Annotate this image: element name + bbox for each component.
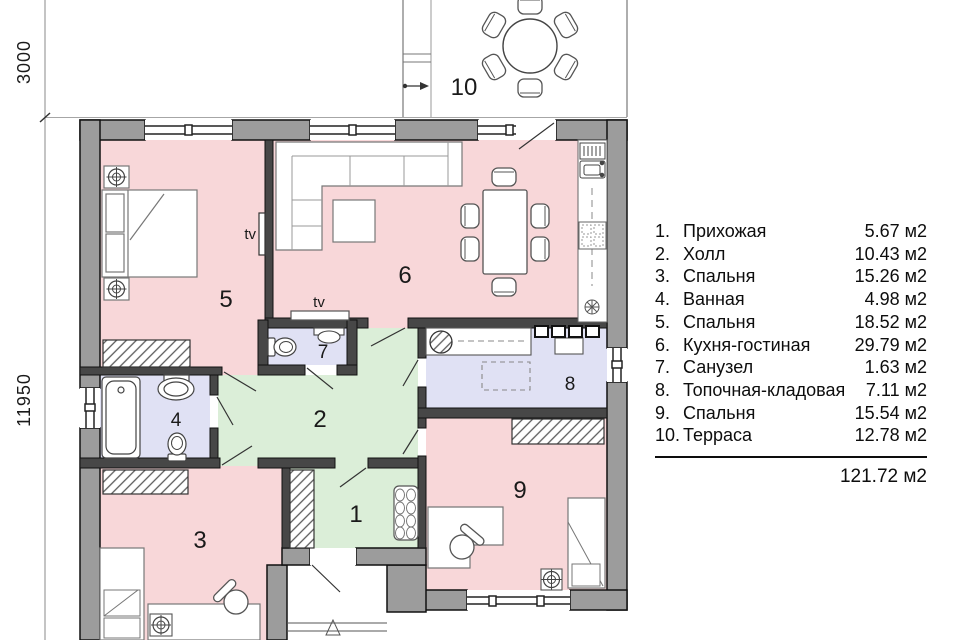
wardrobe-bedroom9	[512, 419, 604, 444]
legend-num: 8.	[655, 379, 683, 402]
bathtub	[102, 377, 140, 458]
window-right-boiler	[607, 348, 627, 382]
legend-num: 2.	[655, 243, 683, 266]
legend-label: Холл	[683, 243, 855, 266]
legend-total: 121.72 м2	[655, 466, 927, 489]
dining-table	[483, 190, 527, 274]
entrance-porch	[287, 620, 387, 635]
bench	[394, 486, 418, 540]
room-number-entry: 1	[349, 501, 362, 528]
window-left-bath	[80, 388, 100, 428]
kitchen-sink	[580, 143, 605, 178]
legend-row: 5. Спальня 18.52 м2	[655, 311, 927, 334]
toilet-bath	[168, 433, 186, 461]
legend-label: Топочная-кладовая	[683, 379, 866, 402]
legend-label: Спальня	[683, 265, 855, 288]
appliance	[555, 338, 583, 354]
tv-stand-label: tv	[313, 294, 325, 311]
legend-row: 3. Спальня 15.26 м2	[655, 265, 927, 288]
legend-num: 1.	[655, 220, 683, 243]
room-legend: 1. Прихожая 5.67 м2 2. Холл 10.43 м2 3. …	[655, 220, 927, 489]
legend-num: 3.	[655, 265, 683, 288]
terrace-table	[480, 0, 580, 97]
legend-area: 29.79 м2	[855, 334, 927, 357]
dimension-top-label: 3000	[14, 40, 34, 84]
floorplan-page: 3000 11950 10	[0, 0, 960, 640]
legend-area: 7.11 м2	[866, 379, 927, 402]
window-top-3	[478, 120, 516, 140]
door-opening-front	[310, 548, 356, 565]
room-number-hall: 2	[313, 406, 326, 433]
toilet-wc	[268, 338, 296, 356]
legend-row: 9. Спальня 15.54 м2	[655, 402, 927, 425]
wardrobe-entry	[290, 470, 314, 548]
legend-row: 8. Топочная-кладовая 7.11 м2	[655, 379, 927, 402]
room-number-bedroom3: 3	[193, 527, 206, 554]
pillow	[106, 194, 124, 232]
legend-row: 4. Ванная 4.98 м2	[655, 288, 927, 311]
legend-label: Прихожая	[683, 220, 865, 243]
legend-num: 10.	[655, 424, 683, 447]
vent-icon	[585, 300, 599, 314]
legend-area: 10.43 м2	[855, 243, 927, 266]
terrace: 10	[403, 0, 627, 117]
bed-foot	[572, 564, 600, 586]
door-leaf-front	[312, 565, 340, 592]
window-bottom-bedroom9	[467, 590, 570, 610]
room-number-boiler: 8	[565, 374, 576, 395]
legend-num: 7.	[655, 356, 683, 379]
room-number-terrace: 10	[451, 74, 478, 101]
legend-num: 9.	[655, 402, 683, 425]
tv-wall-panel	[259, 213, 265, 255]
coffee-table	[333, 200, 375, 242]
room-number-wc: 7	[318, 342, 329, 363]
tv-wall-label: tv	[244, 226, 256, 243]
stairs-direction-arrow	[403, 82, 429, 90]
legend-area: 15.54 м2	[855, 402, 927, 425]
legend-num: 6.	[655, 334, 683, 357]
legend-row: 2. Холл 10.43 м2	[655, 243, 927, 266]
legend-area: 18.52 м2	[855, 311, 927, 334]
legend-label: Спальня	[683, 311, 855, 334]
legend-area: 4.98 м2	[865, 288, 927, 311]
legend-row: 7. Санузел 1.63 м2	[655, 356, 927, 379]
legend-area: 12.78 м2	[855, 424, 927, 447]
legend-row: 6. Кухня-гостиная 29.79 м2	[655, 334, 927, 357]
legend-label: Терраса	[683, 424, 855, 447]
legend-num: 5.	[655, 311, 683, 334]
legend-row: 1. Прихожая 5.67 м2	[655, 220, 927, 243]
legend-divider	[655, 456, 927, 458]
room-number-bedroom9: 9	[513, 477, 526, 504]
legend-label: Санузел	[683, 356, 865, 379]
dimension-side-label: 11950	[14, 373, 34, 427]
legend-area: 1.63 м2	[865, 356, 927, 379]
room-number-bath: 4	[171, 410, 182, 431]
legend-label: Спальня	[683, 402, 855, 425]
legend-row: 10. Терраса 12.78 м2	[655, 424, 927, 447]
legend-num: 4.	[655, 288, 683, 311]
room-hall-fill-upper	[357, 328, 418, 375]
legend-label: Кухня-гостиная	[683, 334, 855, 357]
room-number-bedroom5: 5	[219, 286, 232, 313]
entry-arrow	[326, 620, 340, 635]
cooktop	[579, 222, 606, 249]
wardrobe-bedroom5	[103, 340, 190, 367]
pillow	[106, 234, 124, 272]
window-top-2	[310, 120, 395, 140]
room-number-kitchen: 6	[398, 262, 411, 289]
wardrobe-bedroom3	[103, 470, 188, 494]
boiler	[430, 331, 452, 353]
tv-stand	[291, 311, 349, 320]
legend-area: 5.67 м2	[865, 220, 927, 243]
legend-label: Ванная	[683, 288, 865, 311]
legend-area: 15.26 м2	[855, 265, 927, 288]
window-top-1	[145, 120, 232, 140]
